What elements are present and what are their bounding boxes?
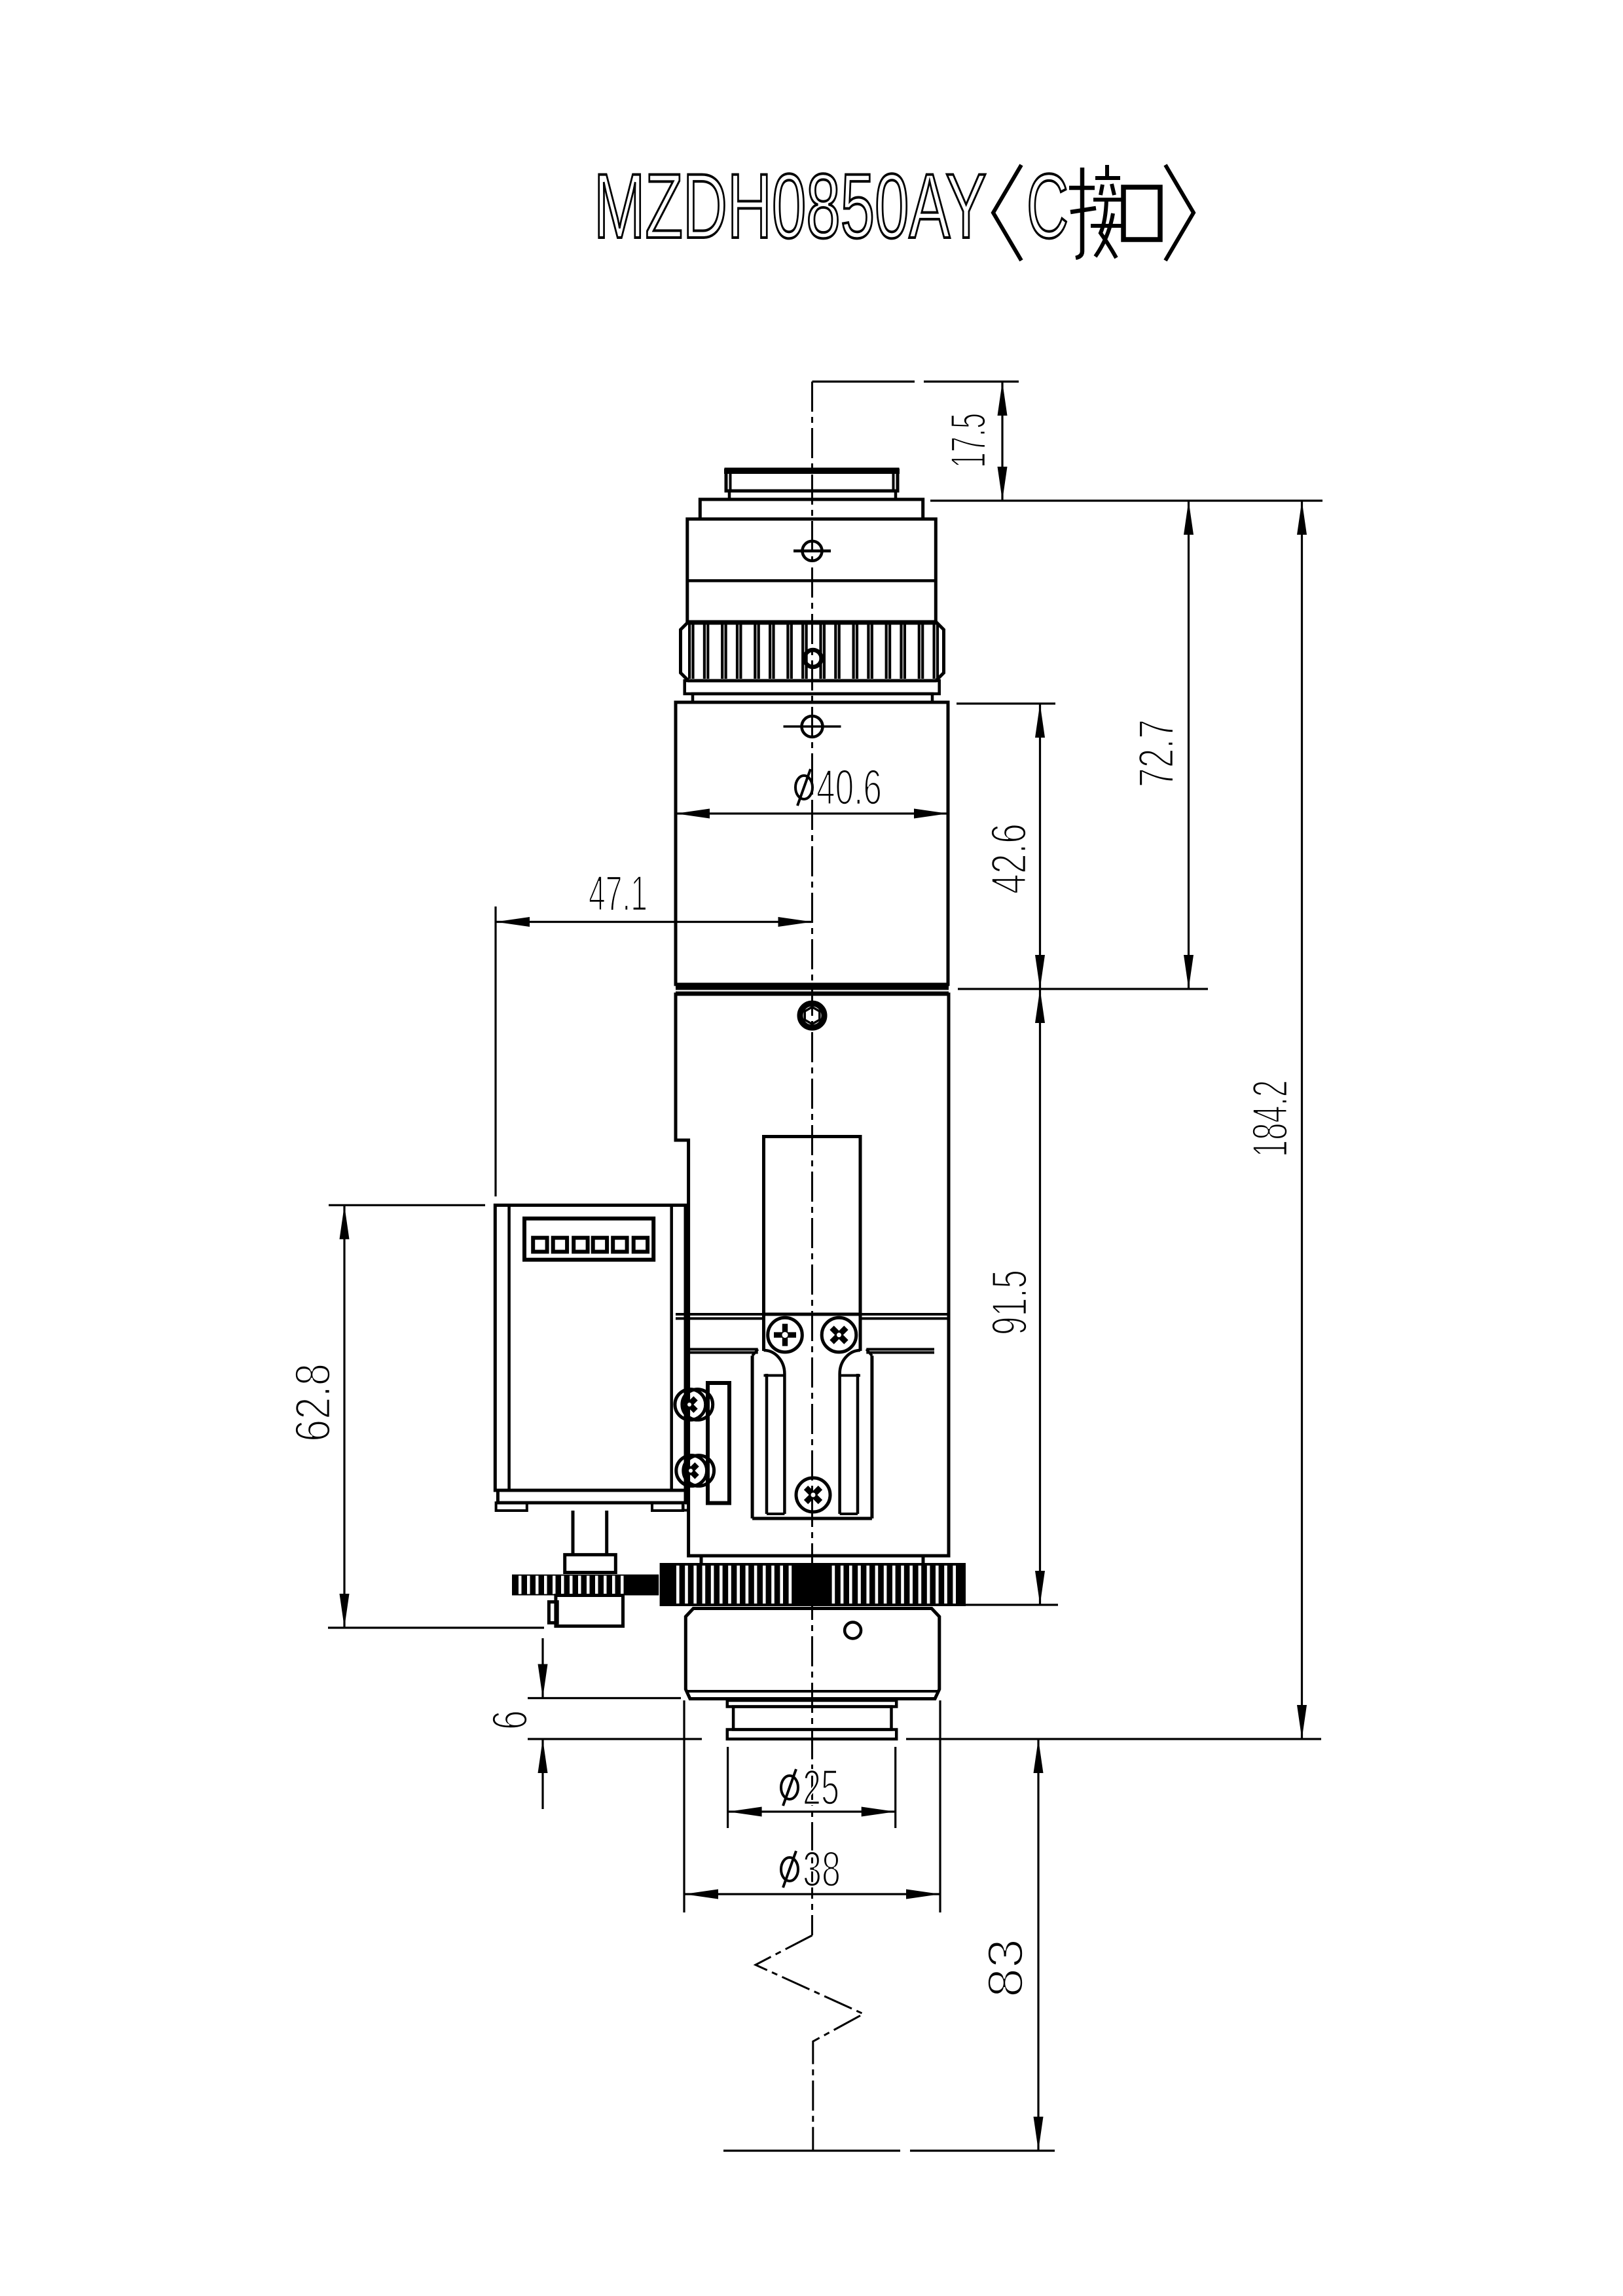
svg-text:MZDH0850AY: MZDH0850AY [594,154,987,257]
svg-text:83: 83 [978,1939,1034,1998]
svg-text:184.2: 184.2 [1243,1080,1298,1157]
svg-text:91.5: 91.5 [982,1270,1038,1335]
svg-text:62.8: 62.8 [285,1363,341,1442]
svg-text:42.6: 42.6 [981,823,1037,894]
svg-text:47.1: 47.1 [589,866,647,922]
svg-text:C: C [1027,154,1068,257]
svg-text:72.7: 72.7 [1129,719,1184,787]
svg-text:25: 25 [803,1760,839,1816]
svg-text:40.6: 40.6 [816,760,882,816]
svg-text:17.5: 17.5 [941,413,996,468]
svg-text:6: 6 [483,1710,538,1730]
svg-text:38: 38 [803,1842,841,1897]
